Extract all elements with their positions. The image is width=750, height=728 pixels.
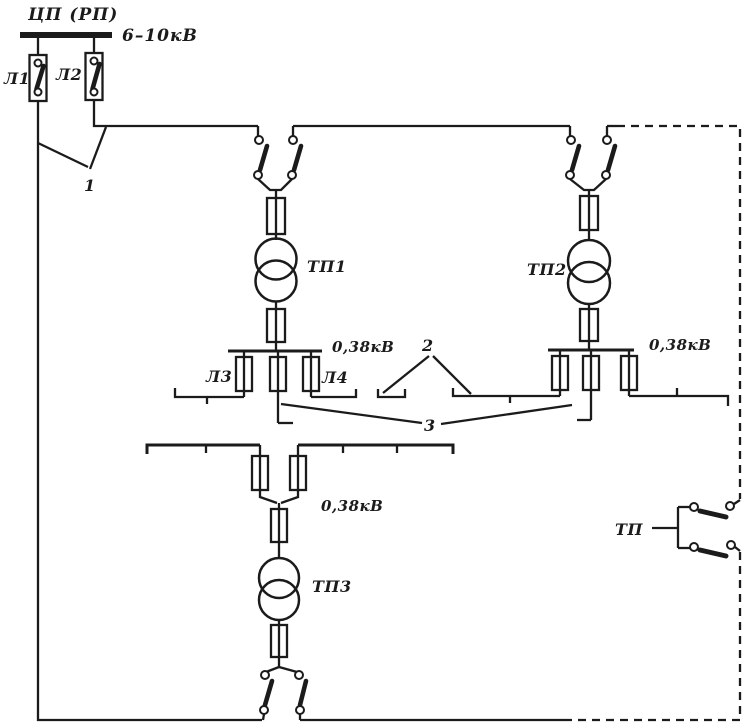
tp3-lv-voltage-label: 0,38кВ <box>321 497 383 515</box>
breaker-blade-icon <box>37 66 44 89</box>
contact-icon <box>566 171 574 179</box>
contact-icon <box>289 136 297 144</box>
callout-3-leader <box>281 404 422 423</box>
feeder-l3-label: Л3 <box>205 367 232 386</box>
contact-icon <box>726 502 734 510</box>
disconnector-blade-icon <box>260 146 267 170</box>
contact-icon <box>260 706 268 714</box>
supply-center: ЦП (РП) 6–10кВ <box>20 5 198 46</box>
contact-icon <box>690 543 698 551</box>
callout-1-leader <box>90 127 106 169</box>
feeder-l3-line <box>175 388 244 397</box>
callout-3: 3 <box>281 404 572 435</box>
callout-2-label: 2 <box>421 336 434 355</box>
transformer-icon <box>256 261 297 302</box>
transformer-icon <box>259 558 299 598</box>
contact-icon <box>91 58 98 65</box>
transformer-icon <box>256 239 297 280</box>
disconnector-blade-icon <box>700 511 726 517</box>
reserve-line-top <box>617 126 740 499</box>
disconnector-blade-icon <box>700 550 726 556</box>
feeder-l1-loop-line <box>38 101 262 720</box>
tp1-lv-voltage-label: 0,38кВ <box>332 338 394 356</box>
feeder-l2: Л2 <box>55 38 258 126</box>
wire <box>570 179 589 190</box>
transformer-icon <box>259 580 299 620</box>
wire <box>276 179 292 190</box>
tp2-lv-network: 0,38кВ <box>453 336 728 420</box>
contact-icon <box>690 503 698 511</box>
substation-tp3-label: ТП3 <box>312 577 352 596</box>
tp2-right-feeder-line <box>629 396 728 406</box>
disconnector-blade-icon <box>265 681 272 705</box>
substation-tp1-label: ТП1 <box>307 257 347 276</box>
scanned-schematic-page: ЦП (РП) 6–10кВ Л1 Л2 1 <box>0 0 750 728</box>
contact-icon <box>603 136 611 144</box>
hv-voltage-label: 6–10кВ <box>122 26 198 46</box>
feeder-l4-label: Л4 <box>321 368 348 387</box>
callout-1-label: 1 <box>84 176 96 195</box>
callout-1: 1 <box>38 127 106 195</box>
disconnector-blade-icon <box>572 146 579 170</box>
substation-tp2-label: ТП2 <box>527 260 567 279</box>
contact-icon <box>727 541 735 549</box>
contact-icon <box>255 136 263 144</box>
tie-jumper-segment <box>378 389 405 397</box>
callout-2-leader <box>383 356 429 393</box>
substation-tp3: ТП3 <box>259 503 352 720</box>
callout-2: 2 <box>383 336 471 394</box>
callout-3-leader <box>441 405 572 424</box>
disconnector-blade-icon <box>608 146 615 170</box>
wire <box>279 667 297 672</box>
substation-tp2: ТП2 <box>527 126 615 350</box>
callout-3-label: 3 <box>424 416 436 435</box>
contact-icon <box>35 89 42 96</box>
tp3-busbar-right <box>298 445 453 454</box>
feeder-l2-label: Л2 <box>55 65 82 84</box>
wire <box>734 500 740 504</box>
breaker-blade-icon <box>93 64 100 89</box>
contact-icon <box>567 136 575 144</box>
tp3-lv-network: 0,38кВ <box>147 445 453 515</box>
disconnector-blade-icon <box>300 681 306 705</box>
distribution-network-diagram: ЦП (РП) 6–10кВ Л1 Л2 1 <box>0 0 750 728</box>
contact-icon <box>296 706 304 714</box>
contact-icon <box>261 671 269 679</box>
contact-icon <box>295 671 303 679</box>
legend-tp-label: ТП <box>615 520 643 539</box>
tp2-lv-voltage-label: 0,38кВ <box>649 336 711 354</box>
feeder-l2-hv-line <box>94 100 258 126</box>
contact-icon <box>602 171 610 179</box>
tp3-busbar-left <box>147 445 260 454</box>
callout-1-leader <box>38 143 88 167</box>
feeder-l1-label: Л1 <box>3 69 30 88</box>
tp1-lv-network: 0,38кВ Л3 Л4 <box>175 338 405 423</box>
reserve-line-bottom <box>570 552 740 720</box>
wire <box>258 179 276 190</box>
reserve-dashed-line <box>570 126 740 720</box>
supply-center-title: ЦП (РП) <box>27 5 118 25</box>
wire <box>589 179 606 190</box>
contact-icon <box>254 171 262 179</box>
wire <box>735 547 740 551</box>
contact-icon <box>288 171 296 179</box>
disconnector-blade-icon <box>294 146 301 170</box>
contact-icon <box>91 89 98 96</box>
substation-tp1: ТП1 <box>254 126 347 351</box>
contact-icon <box>35 60 42 67</box>
legend-tp: ТП <box>615 500 740 556</box>
wire <box>263 714 264 720</box>
